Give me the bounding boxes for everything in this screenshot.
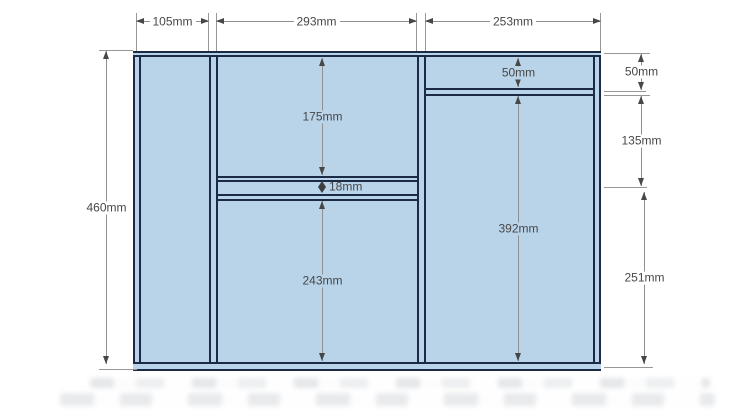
dim-right-135: 135mm (637, 96, 646, 186)
arrow-up-icon (638, 96, 644, 104)
dimension-label: 105mm (149, 15, 195, 28)
dimension-label: 243mm (299, 275, 345, 288)
dim-section-392: 392mm (514, 96, 523, 361)
right-shelf (426, 88, 593, 96)
arrow-down-icon (638, 82, 644, 90)
vertical-divider-2 (417, 57, 426, 362)
right-compartment (426, 57, 593, 362)
arrow-up-icon (319, 58, 325, 66)
arrow-up-icon (103, 51, 109, 59)
left-compartment (141, 57, 209, 362)
dim-gap-18: 18mm (329, 181, 362, 194)
arrow-up-icon (638, 54, 644, 62)
top-panel (133, 51, 601, 57)
arrow-down-icon (641, 356, 647, 364)
dim-height-460: 460mm (102, 51, 111, 364)
dimension-label: 50mm (499, 66, 538, 79)
left-side-panel (133, 51, 141, 371)
arrow-left-icon (425, 18, 433, 24)
cutting-diagram: 105mm 293mm 253mm 460mm 175mm 18mm 243mm (0, 0, 743, 418)
dimension-label: 175mm (299, 110, 345, 123)
arrow-left-icon (216, 18, 224, 24)
arrow-down-icon (103, 356, 109, 364)
arrow-up-icon (641, 192, 647, 200)
dim-width-105: 105mm (136, 17, 209, 26)
arrow-down-icon (515, 353, 521, 361)
dimension-label: 135mm (618, 135, 664, 148)
dimension-label: 293mm (293, 15, 339, 28)
dim-section-50-interior: 50mm (514, 58, 523, 87)
arrow-right-icon (593, 18, 601, 24)
dimension-label: 50mm (622, 66, 661, 79)
extension-line (604, 367, 653, 368)
arrow-left-icon (136, 18, 144, 24)
vertical-divider-1 (209, 57, 218, 362)
dimension-label: 253mm (490, 15, 536, 28)
right-side-panel (593, 51, 601, 371)
arrow-down-icon (515, 79, 521, 87)
middle-shelf-lower (218, 194, 417, 201)
arrow-down-icon (319, 167, 325, 175)
arrow-right-icon (201, 18, 209, 24)
arrow-up-icon (319, 201, 325, 209)
dim-right-50: 50mm (637, 54, 646, 90)
dim-width-253: 253mm (425, 17, 601, 26)
background-artifact (90, 378, 710, 388)
dim-right-251: 251mm (640, 192, 649, 364)
extension-line (604, 91, 646, 92)
dimension-label: 392mm (495, 222, 541, 235)
arrow-down-icon (638, 178, 644, 186)
dimension-label: 460mm (83, 201, 129, 214)
extension-line (99, 369, 137, 370)
dimension-label: 251mm (621, 272, 667, 285)
extension-line (604, 187, 647, 188)
arrow-down-icon (319, 353, 325, 361)
background-artifact (60, 393, 715, 406)
bottom-panel (133, 362, 601, 371)
dim-section-243: 243mm (318, 201, 327, 361)
arrow-down-icon (318, 187, 326, 193)
dim-section-175: 175mm (318, 58, 327, 175)
dim-width-293: 293mm (216, 17, 417, 26)
arrow-up-icon (515, 96, 521, 104)
arrow-right-icon (409, 18, 417, 24)
